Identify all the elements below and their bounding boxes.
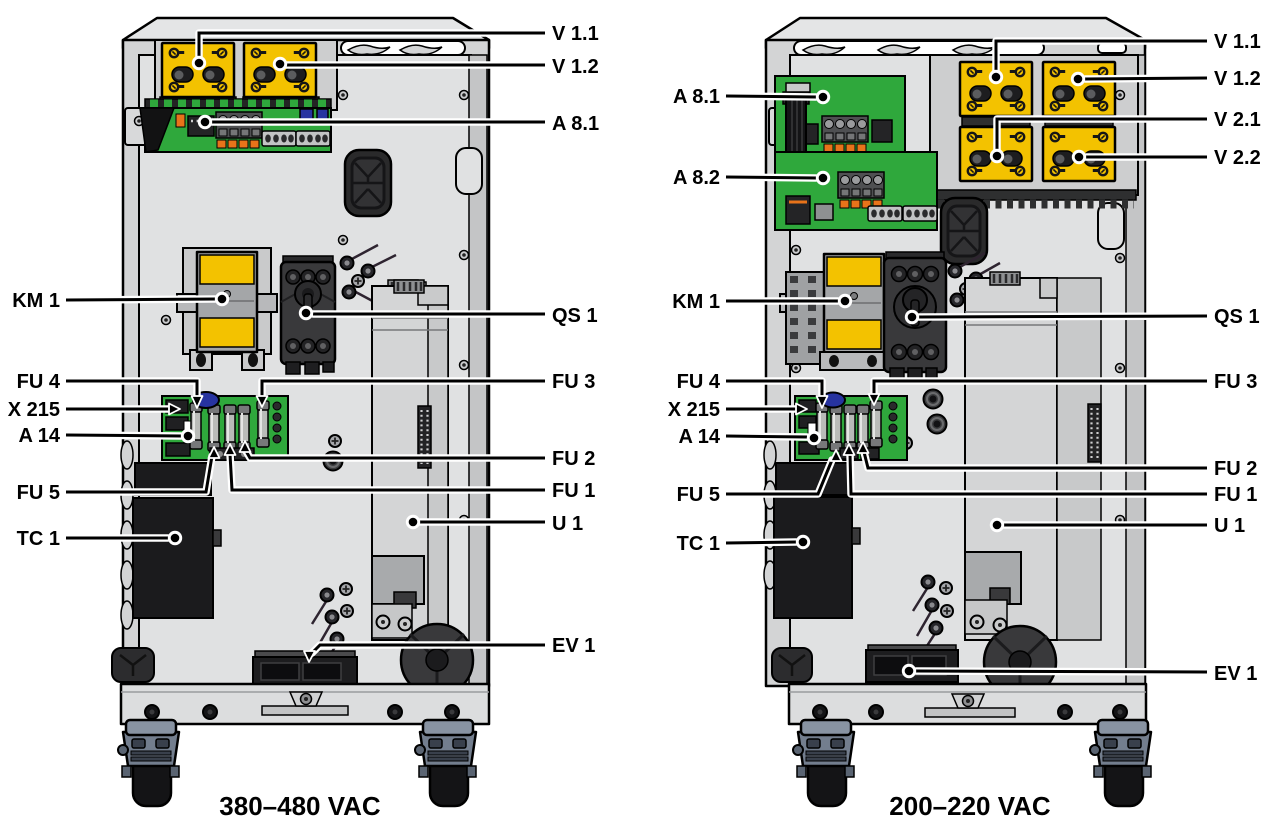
label-ev1: EV 1 <box>1214 663 1257 685</box>
label-ev1: EV 1 <box>552 635 595 657</box>
label-v1-1: V 1.1 <box>1214 31 1261 53</box>
label-u1: U 1 <box>552 513 583 535</box>
label-fu4: FU 4 <box>17 371 61 393</box>
cabinet-right <box>764 18 1151 806</box>
contactor-km1-right <box>780 254 892 370</box>
label-x215: X 215 <box>8 399 60 421</box>
label-fu2: FU 2 <box>552 448 595 470</box>
contactor-km1-left <box>177 248 277 370</box>
fuse-fu5 <box>830 405 842 451</box>
label-x215: X 215 <box>668 399 720 421</box>
label-a8-1: A 8.1 <box>552 113 599 135</box>
label-v1-2: V 1.2 <box>1214 68 1261 90</box>
pcb-a8-2-right <box>775 152 937 230</box>
caption-left-voltage: 380–480 VAC <box>219 791 381 821</box>
label-fu3: FU 3 <box>1214 371 1257 393</box>
door-handle <box>941 198 987 264</box>
diagram-page: V 1.1 V 1.2 A 8.1 KM 1 QS 1 FU 4 X 215 A… <box>0 0 1280 832</box>
label-a8-1: A 8.1 <box>673 86 720 108</box>
module-v1-2 <box>1043 62 1115 116</box>
label-fu3: FU 3 <box>552 371 595 393</box>
label-fu5: FU 5 <box>677 484 720 506</box>
label-fu5: FU 5 <box>17 482 60 504</box>
label-u1: U 1 <box>1214 515 1245 537</box>
label-qs1: QS 1 <box>552 305 598 327</box>
drive-u1-right <box>965 272 1101 640</box>
caption-right-voltage: 200–220 VAC <box>889 791 1051 821</box>
label-a14: A 14 <box>18 425 60 447</box>
label-fu1: FU 1 <box>1214 484 1257 506</box>
label-fu2: FU 2 <box>1214 458 1257 480</box>
label-fu1: FU 1 <box>552 480 595 502</box>
label-tc1: TC 1 <box>677 533 720 555</box>
label-tc1: TC 1 <box>17 528 60 550</box>
label-a14: A 14 <box>678 426 720 448</box>
label-qs1: QS 1 <box>1214 306 1260 328</box>
wiring-diagram: V 1.1 V 1.2 A 8.1 KM 1 QS 1 FU 4 X 215 A… <box>0 0 1280 832</box>
door-handle <box>345 150 391 216</box>
caster <box>793 720 854 806</box>
label-a8-2: A 8.2 <box>673 167 720 189</box>
label-v1-1: V 1.1 <box>552 23 599 45</box>
base-right <box>789 684 1151 806</box>
label-v2-1: V 2.1 <box>1214 109 1261 131</box>
caster <box>1090 720 1151 806</box>
label-v1-2: V 1.2 <box>552 56 599 78</box>
fuse-board-left <box>162 392 288 460</box>
caster <box>118 720 179 806</box>
fuse-fu5 <box>208 405 220 451</box>
base-left <box>118 684 489 806</box>
label-km1: KM 1 <box>12 290 60 312</box>
fuse-fu3 <box>257 401 269 447</box>
pin-header <box>1088 404 1101 462</box>
label-v2-2: V 2.2 <box>1214 147 1261 169</box>
label-fu4: FU 4 <box>677 371 721 393</box>
fuse-fu3 <box>870 401 882 447</box>
caster <box>415 720 476 806</box>
label-km1: KM 1 <box>672 291 720 313</box>
